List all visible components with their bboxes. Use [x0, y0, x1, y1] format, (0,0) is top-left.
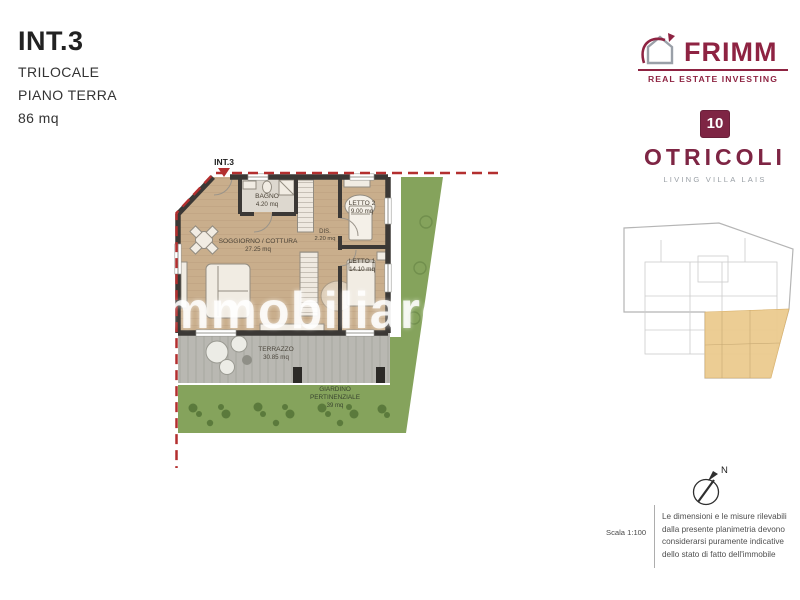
disclaimer-line: dello stato di fatto dell'immobile: [662, 549, 796, 562]
frimm-house-icon: [638, 30, 680, 66]
unit-floor: PIANO TERRA: [18, 87, 117, 103]
svg-text:LETTO 2: LETTO 2: [349, 200, 376, 207]
svg-text:TERRAZZO: TERRAZZO: [258, 346, 294, 353]
frimm-divider: [638, 69, 788, 71]
unit-type: TRILOCALE: [18, 64, 117, 80]
unit-title: INT.3: [18, 26, 117, 57]
disclaimer-line: dalla presente planimetria devono: [662, 524, 796, 537]
frimm-tagline: REAL ESTATE INVESTING: [638, 74, 788, 84]
svg-text:4.20 mq: 4.20 mq: [256, 201, 279, 208]
planimetry-page: INT.3 BAGNO 4.20 mq LETTO 2 9.00 mq SOGG…: [0, 0, 800, 600]
svg-text:2.20 mq: 2.20 mq: [315, 236, 336, 242]
project-name: OTRICOLI: [636, 144, 794, 171]
svg-text:LETTO 1: LETTO 1: [349, 258, 376, 265]
svg-text:SOGGIORNO / COTTURA: SOGGIORNO / COTTURA: [219, 238, 298, 245]
room-label-letto1: LETTO 1 14.10 mq: [349, 258, 376, 273]
frimm-name: FRIMM: [684, 39, 777, 66]
svg-text:GIARDINO: GIARDINO: [319, 386, 351, 393]
project-block: 10 OTRICOLI LIVING VILLA LAIS: [636, 110, 794, 184]
scale-label: Scala 1:100: [606, 528, 646, 537]
compass-north-label: N: [721, 465, 728, 476]
unit-area: 86 mq: [18, 110, 117, 126]
project-subtitle: LIVING VILLA LAIS: [636, 175, 794, 184]
entrance-label: INT.3: [214, 157, 234, 167]
room-label-letto2: LETTO 2 9.00 mq: [349, 200, 376, 215]
svg-text:PERTINENZIALE: PERTINENZIALE: [310, 394, 360, 401]
project-number-badge: 10: [700, 110, 730, 138]
svg-text:DIS.: DIS.: [319, 229, 331, 235]
room-label-bagno: BAGNO 4.20 mq: [255, 193, 279, 208]
key-plan: [624, 223, 793, 378]
apartment-interior: [175, 174, 391, 336]
floorplan-drawing: INT.3 BAGNO 4.20 mq LETTO 2 9.00 mq SOGG…: [0, 0, 800, 600]
disclaimer-line: considerarsi puramente indicative: [662, 536, 796, 549]
disclaimer-text: Le dimensioni e le misure rilevabili dal…: [662, 511, 796, 561]
compass: N: [694, 465, 729, 505]
svg-text:39 mq: 39 mq: [327, 403, 344, 409]
svg-text:14.10 mq: 14.10 mq: [349, 266, 375, 273]
svg-text:30.85 mq: 30.85 mq: [263, 354, 289, 361]
svg-text:BAGNO: BAGNO: [255, 193, 279, 200]
svg-text:27.25 mq: 27.25 mq: [245, 246, 271, 253]
disclaimer-line: Le dimensioni e le misure rilevabili: [662, 511, 796, 524]
room-label-terrazzo: TERRAZZO 30.85 mq: [258, 346, 294, 361]
footer-divider: [654, 505, 655, 568]
svg-text:9.00 mq: 9.00 mq: [351, 208, 374, 215]
frimm-logo: FRIMM REAL ESTATE INVESTING: [638, 30, 788, 84]
unit-header: INT.3 TRILOCALE PIANO TERRA 86 mq: [18, 26, 117, 126]
key-plan-unit-highlight: [705, 309, 789, 378]
